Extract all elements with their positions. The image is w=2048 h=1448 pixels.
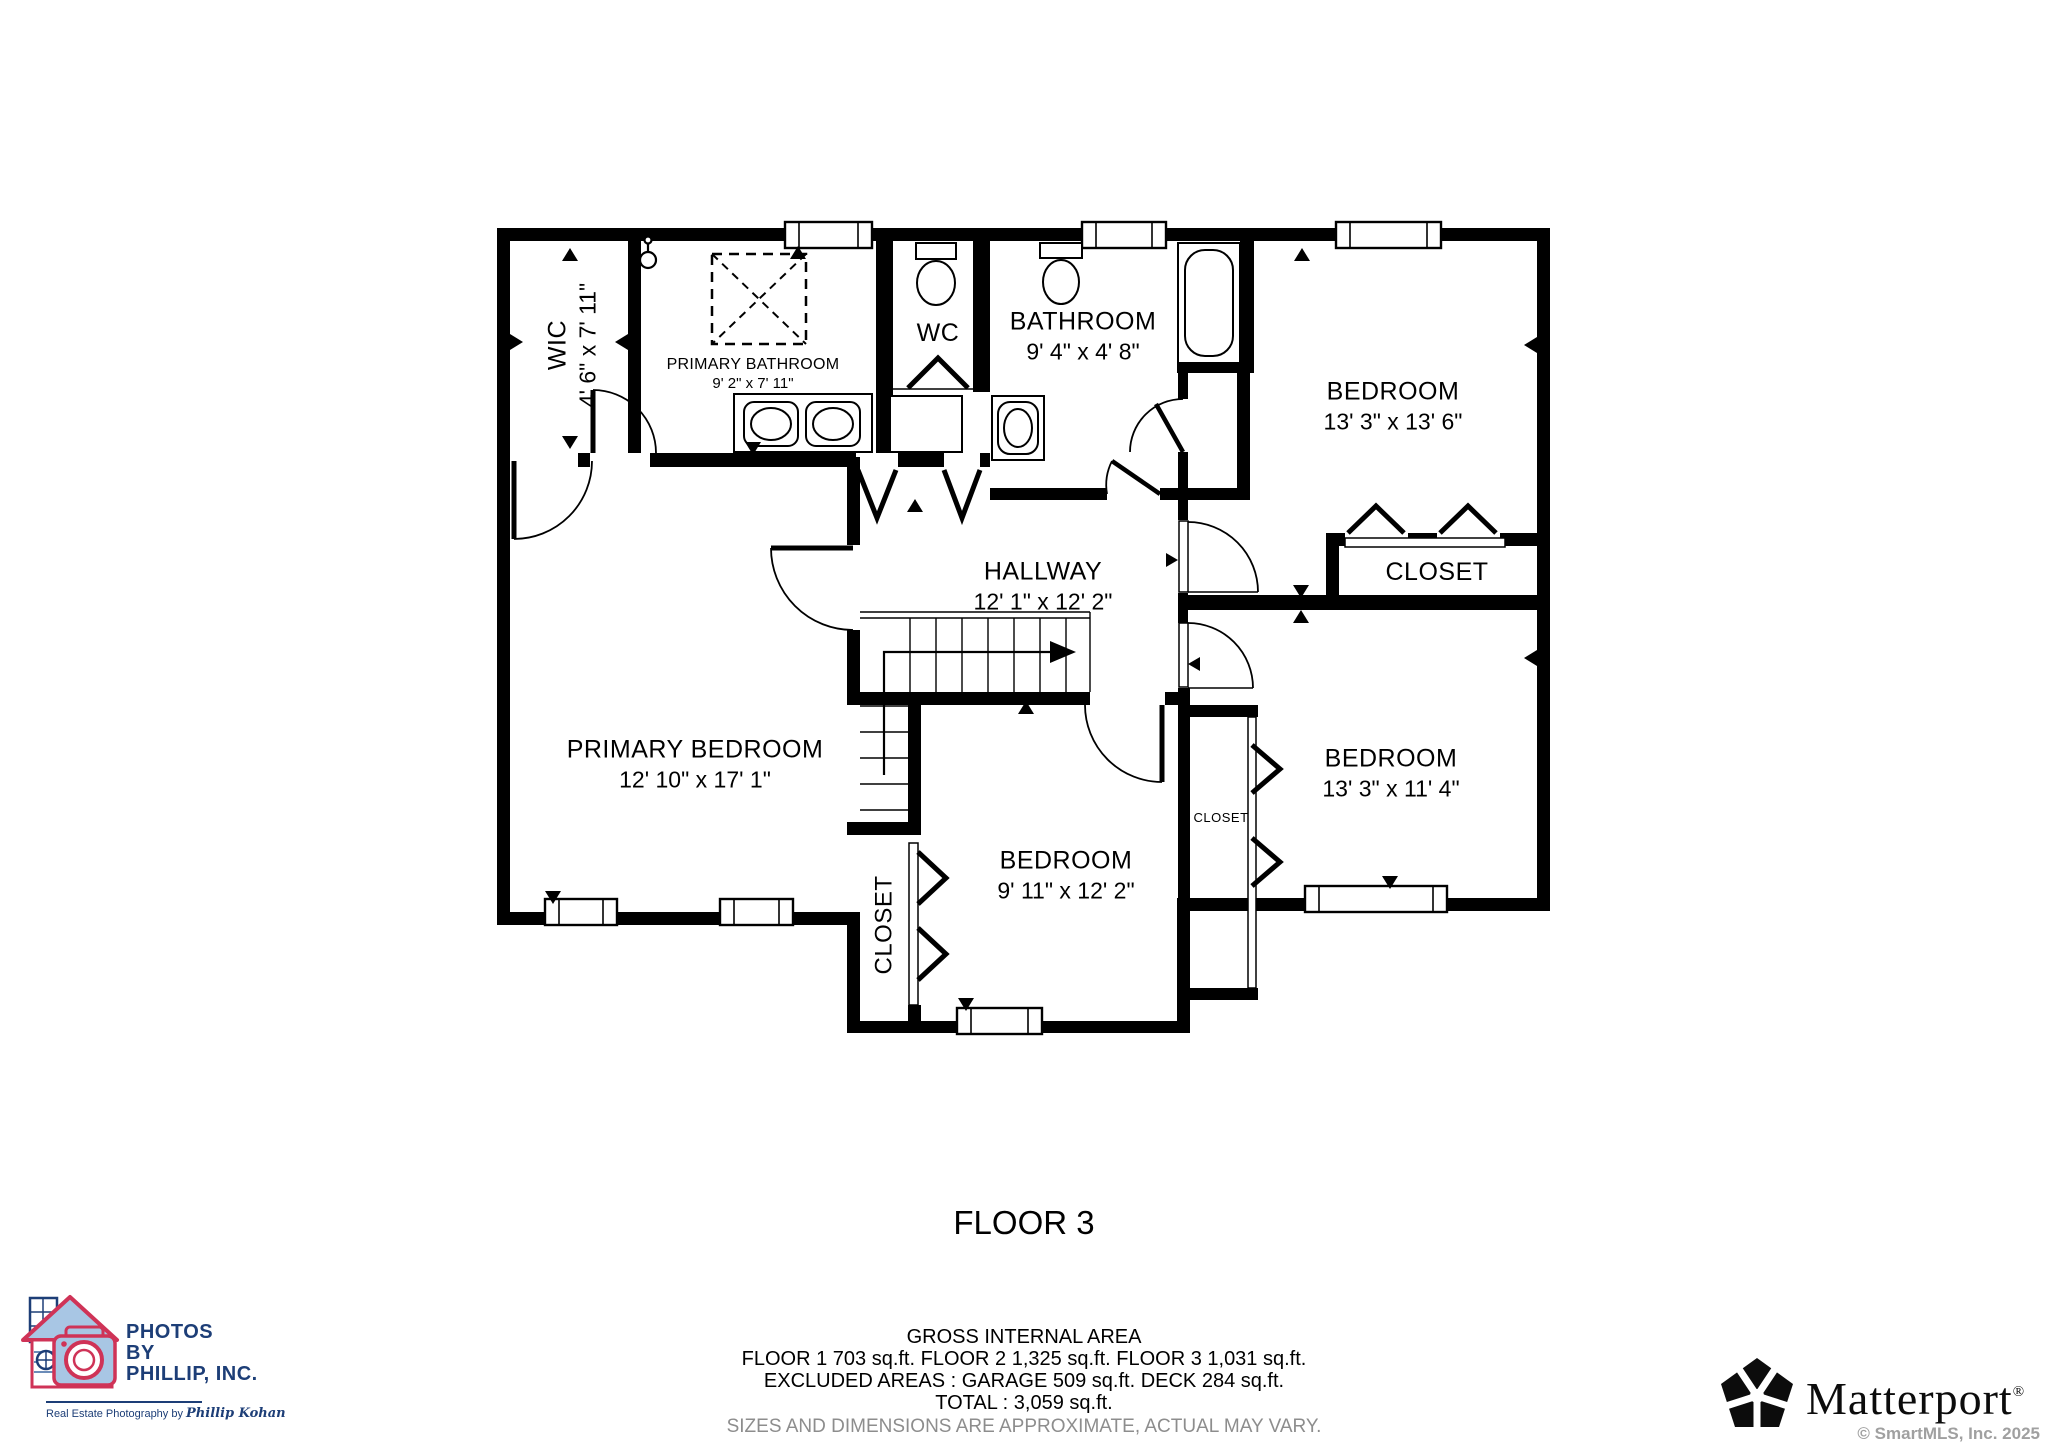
opening-chevron [944,470,980,518]
area-summary-title: GROSS INTERNAL AREA [0,1327,2048,1348]
stairs-direction-arrow [1050,641,1076,663]
area-summary-floors: FLOOR 1 703 sq.ft. FLOOR 2 1,325 sq.ft. … [0,1349,2048,1370]
door-wic [514,461,592,539]
bathtub-icon [1178,243,1240,363]
window [1336,222,1441,248]
window [1305,886,1447,912]
room-dims: 9' 11" x 12' 2" [997,876,1134,904]
door-wc [893,358,973,389]
room-name: WC [917,318,960,349]
window [785,222,872,248]
door-primary-bathroom [593,390,656,453]
room-dims: 9' 4" x 4' 8" [1010,337,1157,365]
photographer-line3: PHILLIP, INC. [126,1364,258,1385]
area-summary-excluded: EXCLUDED AREAS : GARAGE 509 sq.ft. DECK … [0,1371,2048,1392]
room-label-bedroom-bottom-right: BEDROOM 13' 3" x 11' 4" [1322,744,1459,803]
floor-plan-page: WIC 4' 6" x 7' 11" PRIMARY BATHROOM 9' 2… [0,0,2048,1448]
room-name: PRIMARY BATHROOM [667,355,840,375]
room-label-closet-small: CLOSET [1193,810,1248,826]
room-dims: 13' 3" x 13' 6" [1324,407,1463,435]
room-label-primary-bathroom: PRIMARY BATHROOM 9' 2" x 7' 11" [667,355,840,393]
room-name: BEDROOM [997,846,1134,877]
room-label-primary-bedroom: PRIMARY BEDROOM 12' 10" x 17' 1" [567,735,824,794]
sink-icon [992,396,1044,460]
door-bedroom-top-right [1179,521,1258,592]
room-label-closet-top-right: CLOSET [1385,557,1488,588]
room-label-bedroom-top-right: BEDROOM 13' 3" x 13' 6" [1324,377,1463,436]
room-name: CLOSET [869,875,898,974]
shower-icon [712,254,806,344]
closet-bifold-top-right [1345,506,1505,547]
room-name: CLOSET [1385,557,1488,588]
room-name: HALLWAY [974,557,1113,588]
window [957,1008,1042,1034]
area-summary: GROSS INTERNAL AREA FLOOR 1 703 sq.ft. F… [0,1327,2048,1438]
door-linen-closet [1130,399,1183,452]
toilet-icon [916,243,956,305]
room-dims: 13' 3" x 11' 4" [1322,774,1459,802]
photographer-line1: PHOTOS [126,1322,258,1343]
opening-chevron [858,470,896,518]
room-label-hallway: HALLWAY 12' 1" x 12' 2" [974,557,1113,616]
room-label-bathroom: BATHROOM 9' 4" x 4' 8" [1010,307,1157,366]
room-dims: 12' 10" x 17' 1" [567,765,824,793]
room-label-wic: WIC 4' 6" x 7' 11" [543,283,602,407]
window [1082,222,1166,248]
photographer-logo-text: PHOTOS BY PHILLIP, INC. [126,1322,258,1385]
room-label-closet-bottom: CLOSET [869,875,898,974]
photographer-line2: BY [126,1343,258,1364]
room-name: BEDROOM [1324,377,1463,408]
room-name: CLOSET [1193,810,1248,826]
matterport-wordmark: Matterport® [1806,1372,2025,1425]
room-dims: 4' 6" x 7' 11" [573,283,601,407]
door-bathroom [1106,461,1160,494]
room-label-bedroom-middle: BEDROOM 9' 11" x 12' 2" [997,846,1134,905]
disclaimer-text: SIZES AND DIMENSIONS ARE APPROXIMATE, AC… [0,1416,2048,1437]
staircase [860,612,1090,810]
room-name: BATHROOM [1010,307,1157,338]
room-dims: 9' 2" x 7' 11" [667,375,840,393]
window [545,899,617,925]
window [720,899,793,925]
floor-title: FLOOR 3 [0,1204,2048,1242]
smartmls-copyright: © SmartMLS, Inc. 2025 [1857,1424,2040,1444]
area-summary-total: TOTAL : 3,059 sq.ft. [0,1393,2048,1414]
closet-bifold-bottom [909,843,946,1005]
wall-lamp-icon [640,237,656,269]
room-name: WIC [543,283,574,407]
door-bedroom-bottom-right [1179,623,1253,688]
door-primary-bedroom [771,548,853,630]
door-bedroom-middle [1085,705,1162,782]
toilet-icon [1040,243,1082,304]
room-dims: 12' 1" x 12' 2" [974,587,1113,615]
matterport-name: Matterport [1806,1373,2013,1424]
room-name: BEDROOM [1322,744,1459,775]
room-label-wc: WC [917,318,960,349]
registered-mark: ® [2013,1384,2025,1400]
photographer-tagline: Real Estate Photography by Phillip Kohan [46,1406,286,1421]
tagline-signature: Phillip Kohan [186,1406,286,1421]
cabinet-icon [890,396,962,452]
closet-bifold-small [1248,717,1280,988]
room-name: PRIMARY BEDROOM [567,735,824,766]
tagline-prefix: Real Estate Photography by [46,1408,186,1420]
